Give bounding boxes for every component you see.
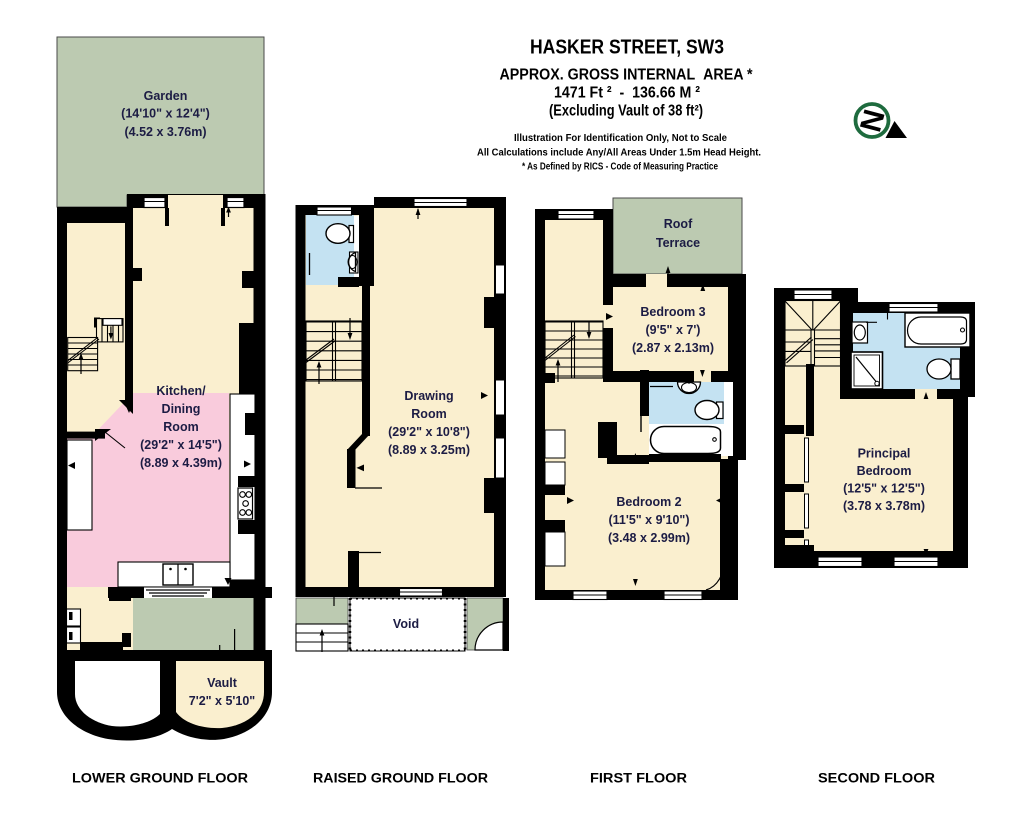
svg-text:(29'2" x 10'8"): (29'2" x 10'8") — [388, 425, 470, 439]
svg-text:Dining: Dining — [162, 402, 201, 416]
svg-text:7'2" x 5'10": 7'2" x 5'10" — [189, 694, 256, 708]
svg-text:HASKER STREET, SW3: HASKER STREET, SW3 — [530, 37, 724, 59]
svg-text:(11'5" x 9'10"): (11'5" x 9'10") — [608, 513, 689, 527]
svg-text:Principal: Principal — [858, 447, 911, 461]
svg-text:FIRST FLOOR: FIRST FLOOR — [590, 771, 687, 787]
svg-text:Room: Room — [163, 420, 198, 434]
svg-text:Illustration For Identificatio: Illustration For Identification Only, No… — [514, 132, 727, 144]
svg-text:Room: Room — [411, 407, 446, 421]
svg-text:LOWER GROUND FLOOR: LOWER GROUND FLOOR — [72, 771, 248, 787]
svg-text:SECOND FLOOR: SECOND FLOOR — [818, 771, 935, 787]
svg-text:(29'2" x 14'5"): (29'2" x 14'5") — [140, 438, 222, 452]
svg-text:APPROX. GROSS INTERNAL AREA *: APPROX. GROSS INTERNAL AREA * — [500, 67, 754, 84]
svg-text:(Excluding Vault of 38 ft²): (Excluding Vault of 38 ft²) — [549, 103, 703, 120]
svg-text:Kitchen/: Kitchen/ — [156, 384, 206, 398]
svg-text:Drawing: Drawing — [404, 389, 453, 403]
svg-text:(8.89 x 4.39m): (8.89 x 4.39m) — [140, 456, 222, 470]
svg-text:RAISED GROUND FLOOR: RAISED GROUND FLOOR — [313, 771, 488, 787]
svg-text:(3.48 x 2.99m): (3.48 x 2.99m) — [608, 531, 690, 545]
svg-text:Void: Void — [393, 617, 419, 631]
svg-text:(14'10" x 12'4"): (14'10" x 12'4") — [121, 107, 210, 121]
svg-text:1471 Ft ² - 136.66 M ²: 1471 Ft ² - 136.66 M ² — [554, 85, 700, 102]
svg-text:(8.89 x 3.25m): (8.89 x 3.25m) — [388, 443, 470, 457]
svg-text:(4.52 x 3.76m): (4.52 x 3.76m) — [125, 125, 207, 139]
svg-text:Terrace: Terrace — [656, 236, 700, 250]
svg-text:* As Defined by RICS - Code of: * As Defined by RICS - Code of Measuring… — [522, 162, 718, 173]
svg-text:Bedroom: Bedroom — [857, 464, 912, 478]
svg-text:Bedroom 3: Bedroom 3 — [640, 305, 705, 319]
svg-text:(2.87 x 2.13m): (2.87 x 2.13m) — [632, 341, 714, 355]
svg-text:(12'5" x 12'5"): (12'5" x 12'5") — [843, 482, 925, 496]
svg-text:(9'5" x 7'): (9'5" x 7') — [646, 323, 701, 337]
svg-text:Roof: Roof — [664, 217, 693, 231]
svg-text:(3.78 x 3.78m): (3.78 x 3.78m) — [843, 499, 925, 513]
svg-text:Bedroom 2: Bedroom 2 — [616, 495, 681, 509]
svg-text:Vault: Vault — [207, 676, 238, 690]
svg-text:Garden: Garden — [144, 89, 188, 103]
svg-text:All Calculations include Any/A: All Calculations include Any/All Areas U… — [477, 147, 761, 159]
